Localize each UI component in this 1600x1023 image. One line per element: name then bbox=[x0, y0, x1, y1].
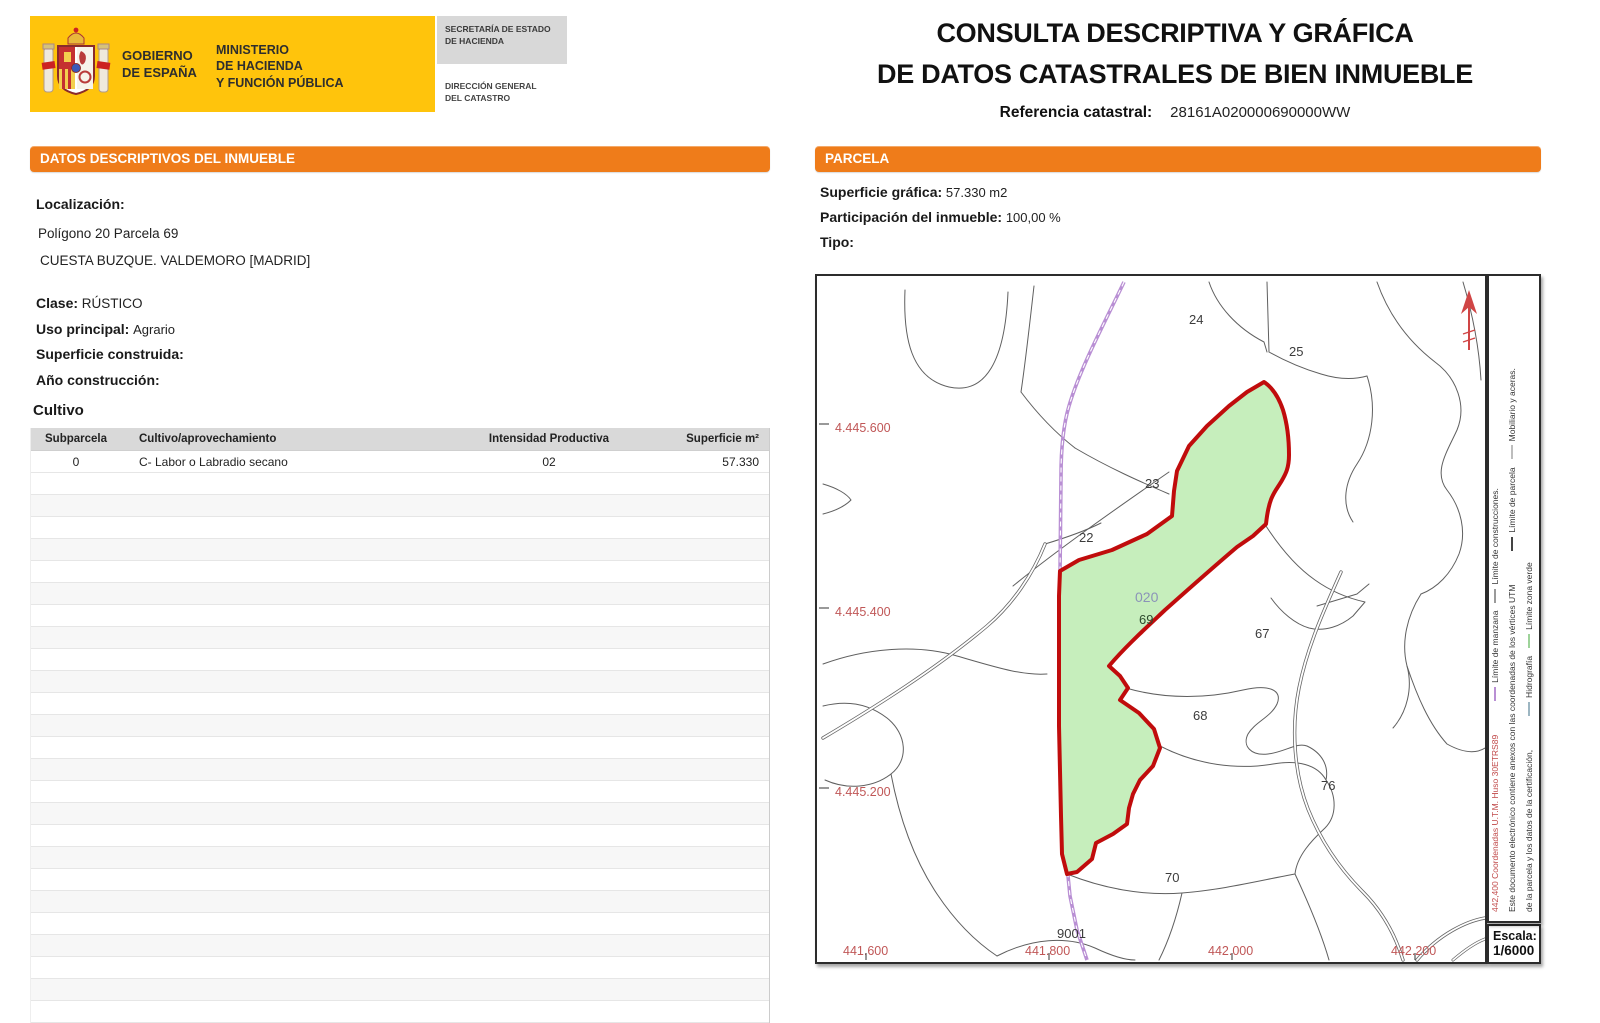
secretaria-box: SECRETARÍA DE ESTADO DE HACIENDA bbox=[437, 16, 567, 64]
superficie-label: Superficie construida: bbox=[36, 346, 184, 362]
empty-table-row bbox=[31, 825, 769, 847]
superficie-field: Superficie construida: bbox=[36, 346, 184, 362]
empty-table-row bbox=[31, 671, 769, 693]
superficie-grafica-field: Superficie gráfica: 57.330 m2 bbox=[820, 184, 1007, 200]
superficie-grafica-label: Superficie gráfica: bbox=[820, 184, 942, 200]
parcel-label-9001: 9001 bbox=[1057, 926, 1086, 941]
cell-intensidad: 02 bbox=[449, 455, 649, 469]
parcel-label-70: 70 bbox=[1165, 870, 1179, 885]
map-canvas: 4.445.600 4.445.400 4.445.200 441.600 44… bbox=[817, 276, 1485, 962]
participacion-field: Participación del inmueble: 100,00 % bbox=[820, 209, 1061, 225]
parcel-label-68: 68 bbox=[1193, 708, 1207, 723]
section-header-datos-descriptivos: DATOS DESCRIPTIVOS DEL INMUEBLE bbox=[30, 146, 770, 172]
clase-label: Clase: bbox=[36, 295, 78, 311]
cell-subparcela: 0 bbox=[31, 455, 121, 469]
parcel-label-69: 69 bbox=[1139, 612, 1153, 627]
empty-table-row bbox=[31, 759, 769, 781]
cultivo-table-header: Subparcela Cultivo/aprovechamiento Inten… bbox=[31, 428, 769, 451]
uso-label: Uso principal: bbox=[36, 321, 129, 337]
empty-table-row bbox=[31, 583, 769, 605]
section-header-parcela: PARCELA bbox=[815, 146, 1541, 172]
title-line-2: DE DATOS CATASTRALES DE BIEN INMUEBLE bbox=[790, 61, 1560, 88]
reference-label: Referencia catastral: bbox=[1000, 104, 1153, 122]
parcel-label-67: 67 bbox=[1255, 626, 1269, 641]
legend-hidrografia: Hidrografía bbox=[1524, 656, 1534, 698]
spain-coat-of-arms-icon bbox=[40, 24, 112, 106]
empty-table-row bbox=[31, 495, 769, 517]
clase-value: RÚSTICO bbox=[82, 296, 143, 311]
cultivo-title: Cultivo bbox=[33, 402, 84, 419]
legend-utm-note: 442,400 Coordenadas U.T.M. Huso 30ETRS89 bbox=[1490, 735, 1500, 912]
empty-table-row bbox=[31, 891, 769, 913]
svg-text:442.200: 442.200 bbox=[1391, 944, 1436, 958]
empty-table-row bbox=[31, 649, 769, 671]
construcciones-swatch-icon bbox=[1494, 589, 1496, 603]
empty-table-row bbox=[31, 627, 769, 649]
svg-text:442.000: 442.000 bbox=[1208, 944, 1253, 958]
gobierno-text: GOBIERNO DE ESPAÑA bbox=[122, 48, 197, 82]
empty-table-row bbox=[31, 539, 769, 561]
empty-table-row bbox=[31, 913, 769, 935]
empty-table-row bbox=[31, 957, 769, 979]
map-legend: 442,400 Coordenadas U.T.M. Huso 30ETRS89… bbox=[1487, 274, 1541, 923]
legend-limite-manzana: Límite de manzana bbox=[1490, 611, 1500, 683]
empty-table-rows bbox=[31, 473, 769, 1023]
col-intensidad: Intensidad Productiva bbox=[449, 433, 649, 445]
empty-table-row bbox=[31, 1001, 769, 1023]
parcel-label-25: 25 bbox=[1289, 344, 1303, 359]
government-logo-block: GOBIERNO DE ESPAÑA MINISTERIO DE HACIEND… bbox=[30, 16, 435, 112]
superficie-grafica-value: 57.330 m2 bbox=[946, 185, 1007, 200]
legend-limite-parcela: Límite de parcela bbox=[1507, 467, 1517, 532]
empty-table-row bbox=[31, 737, 769, 759]
legend-line-1: 442,400 Coordenadas U.T.M. Huso 30ETRS89… bbox=[1490, 274, 1500, 912]
manzana-swatch-icon bbox=[1494, 687, 1496, 701]
scale-value: 1/6000 bbox=[1493, 943, 1535, 958]
tipo-label: Tipo: bbox=[820, 234, 854, 250]
empty-table-row bbox=[31, 605, 769, 627]
parcel-label-22: 22 bbox=[1079, 530, 1093, 545]
cadastral-map: 4.445.600 4.445.400 4.445.200 441.600 44… bbox=[815, 274, 1487, 964]
legend-line-3: de la parcela y los datos de la certific… bbox=[1524, 274, 1534, 912]
col-subparcela: Subparcela bbox=[31, 433, 121, 445]
parcel-label-76: 76 bbox=[1321, 778, 1335, 793]
col-superficie: Superficie m² bbox=[649, 433, 769, 445]
parcel-label-24: 24 bbox=[1189, 312, 1203, 327]
scale-label: Escala: bbox=[1493, 929, 1535, 943]
cadastral-certificate-page: { "header": { "gobierno_l1": "GOBIERNO",… bbox=[0, 0, 1600, 1005]
ministerio-text: MINISTERIO DE HACIENDA Y FUNCIÓN PÚBLICA bbox=[216, 42, 344, 91]
scale-box: Escala: 1/6000 bbox=[1487, 924, 1541, 964]
reference-value: 28161A020000690000WW bbox=[1170, 104, 1350, 121]
cadastral-reference: Referencia catastral: 28161A020000690000… bbox=[790, 104, 1560, 122]
parcel-label-23: 23 bbox=[1145, 476, 1159, 491]
localizacion-line-1: Polígono 20 Parcela 69 bbox=[38, 226, 178, 241]
uso-value: Agrario bbox=[133, 322, 175, 337]
direccion-general-text: DIRECCIÓN GENERAL DEL CATASTRO bbox=[445, 80, 537, 105]
parcel-label-020: 020 bbox=[1135, 589, 1159, 605]
cultivo-table: Subparcela Cultivo/aprovechamiento Inten… bbox=[30, 428, 770, 1023]
legend-mobiliario-aceras: Mobiliario y aceras. bbox=[1507, 368, 1517, 441]
document-title: CONSULTA DESCRIPTIVA Y GRÁFICA DE DATOS … bbox=[790, 14, 1560, 122]
parcela-swatch-icon bbox=[1511, 537, 1513, 551]
localizacion-label: Localización: bbox=[36, 196, 125, 212]
svg-text:4.445.400: 4.445.400 bbox=[835, 605, 891, 619]
empty-table-row bbox=[31, 935, 769, 957]
empty-table-row bbox=[31, 847, 769, 869]
uso-field: Uso principal: Agrario bbox=[36, 321, 175, 337]
north-arrow-icon bbox=[1461, 290, 1477, 350]
svg-text:4.445.200: 4.445.200 bbox=[835, 785, 891, 799]
localizacion-line-2: CUESTA BUZQUE. VALDEMORO [MADRID] bbox=[40, 253, 310, 268]
cell-superficie: 57.330 bbox=[649, 455, 769, 469]
empty-table-row bbox=[31, 979, 769, 1001]
empty-table-row bbox=[31, 693, 769, 715]
participacion-value: 100,00 % bbox=[1006, 210, 1061, 225]
legend-note-part-1: Este documento electrónico contiene anex… bbox=[1507, 585, 1517, 912]
legend-note-part-2: de la parcela y los datos de la certific… bbox=[1524, 750, 1534, 912]
zona-verde-swatch-icon bbox=[1528, 634, 1530, 648]
empty-table-row bbox=[31, 517, 769, 539]
legend-line-2: Este documento electrónico contiene anex… bbox=[1507, 274, 1517, 912]
participacion-label: Participación del inmueble: bbox=[820, 209, 1002, 225]
tipo-field: Tipo: bbox=[820, 234, 854, 250]
cell-cultivo: C- Labor o Labradio secano bbox=[121, 455, 449, 469]
table-row: 0 C- Labor o Labradio secano 02 57.330 bbox=[31, 451, 769, 473]
mobiliario-swatch-icon bbox=[1511, 445, 1513, 459]
empty-table-row bbox=[31, 803, 769, 825]
empty-table-row bbox=[31, 473, 769, 495]
legend-limite-construcciones: Límite de construcciones. bbox=[1490, 488, 1500, 584]
clase-field: Clase: RÚSTICO bbox=[36, 295, 143, 311]
empty-table-row bbox=[31, 561, 769, 583]
title-line-1: CONSULTA DESCRIPTIVA Y GRÁFICA bbox=[790, 20, 1560, 47]
col-cultivo: Cultivo/aprovechamiento bbox=[121, 433, 449, 445]
map-side-column: 442,400 Coordenadas U.T.M. Huso 30ETRS89… bbox=[1487, 274, 1541, 964]
legend-limite-zona-verde: Límite zona verde bbox=[1524, 562, 1534, 630]
cadastral-map-section: 4.445.600 4.445.400 4.445.200 441.600 44… bbox=[815, 274, 1541, 964]
empty-table-row bbox=[31, 869, 769, 891]
empty-table-row bbox=[31, 715, 769, 737]
svg-text:4.445.600: 4.445.600 bbox=[835, 421, 891, 435]
hidrografia-swatch-icon bbox=[1528, 702, 1530, 716]
ano-label: Año construcción: bbox=[36, 372, 160, 388]
svg-text:441.800: 441.800 bbox=[1025, 944, 1070, 958]
ano-field: Año construcción: bbox=[36, 372, 160, 388]
empty-table-row bbox=[31, 781, 769, 803]
